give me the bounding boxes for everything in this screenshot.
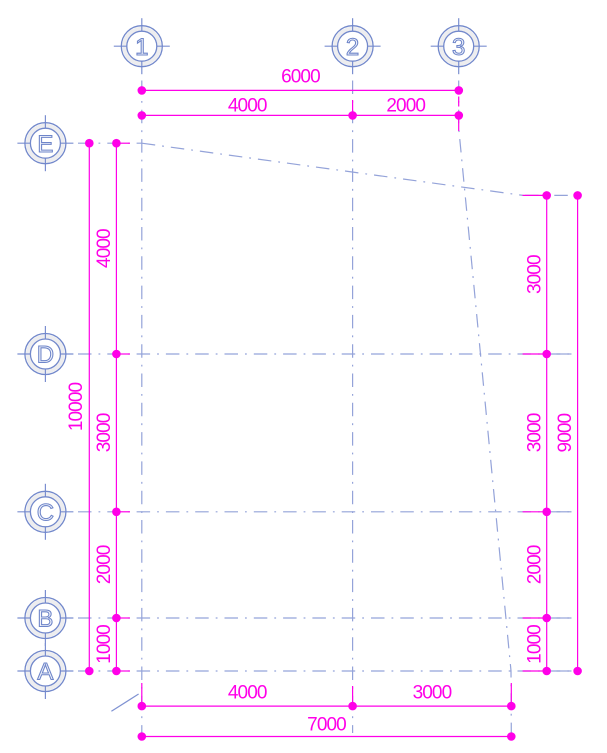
svg-text:2000: 2000 — [94, 545, 115, 584]
svg-text:4000: 4000 — [228, 95, 267, 116]
svg-text:3: 3 — [452, 34, 465, 61]
svg-text:4000: 4000 — [94, 229, 115, 268]
svg-text:9000: 9000 — [555, 413, 576, 452]
svg-text:3000: 3000 — [524, 255, 545, 294]
svg-text:10000: 10000 — [66, 383, 87, 432]
svg-text:2000: 2000 — [524, 545, 545, 584]
svg-text:2000: 2000 — [386, 95, 425, 116]
svg-text:D: D — [37, 342, 54, 369]
svg-text:1000: 1000 — [524, 625, 545, 664]
svg-text:4000: 4000 — [228, 682, 267, 703]
svg-text:1000: 1000 — [94, 625, 115, 664]
svg-text:3000: 3000 — [413, 682, 452, 703]
svg-text:A: A — [37, 659, 53, 686]
svg-text:2: 2 — [346, 34, 359, 61]
svg-text:6000: 6000 — [281, 67, 320, 88]
svg-text:3000: 3000 — [94, 413, 115, 452]
svg-text:E: E — [37, 131, 53, 158]
svg-text:B: B — [37, 606, 53, 633]
svg-text:1: 1 — [135, 34, 148, 61]
svg-text:7000: 7000 — [307, 715, 346, 736]
svg-text:C: C — [37, 499, 54, 526]
svg-text:3000: 3000 — [524, 413, 545, 452]
